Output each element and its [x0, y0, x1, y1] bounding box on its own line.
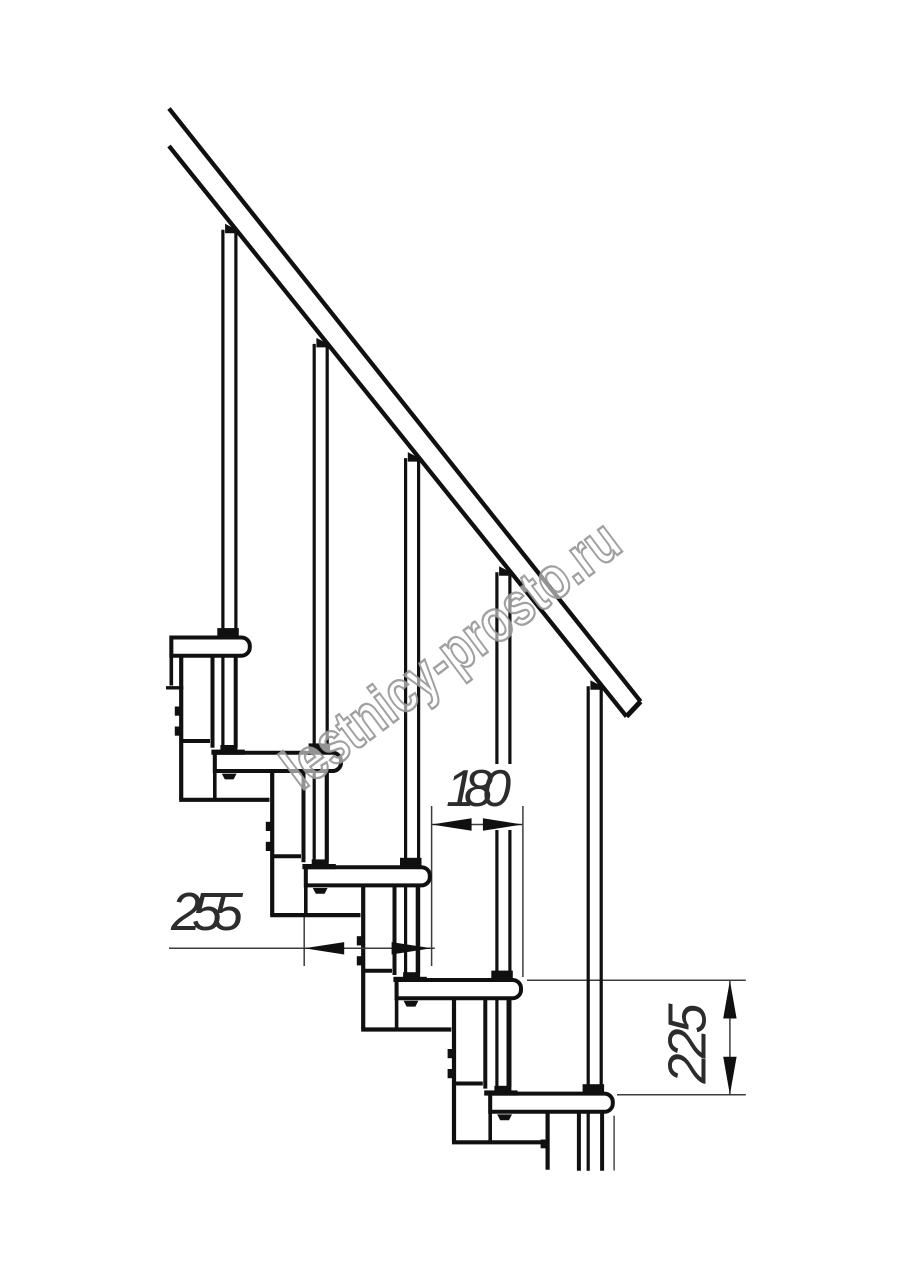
- svg-text:225: 225: [658, 1003, 718, 1085]
- svg-text:180: 180: [446, 760, 511, 818]
- svg-text:255: 255: [170, 882, 244, 942]
